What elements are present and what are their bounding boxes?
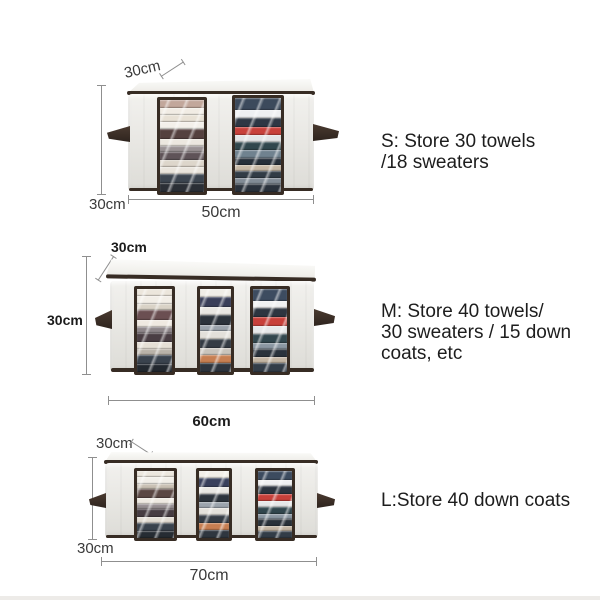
folded-clothes-stripe xyxy=(137,364,172,373)
folded-clothes-stripe xyxy=(258,471,292,480)
folded-clothes-stripe xyxy=(235,150,281,157)
folded-clothes-stripe xyxy=(160,122,204,129)
description-l-line1: L:Store 40 down coats xyxy=(381,490,570,511)
clothes-window-m-1 xyxy=(134,286,175,375)
width-label-l: 70cm xyxy=(101,567,317,585)
folded-clothes-stripe xyxy=(235,171,281,178)
folded-clothes-stripe xyxy=(235,158,281,165)
folded-clothes-stripe xyxy=(137,523,174,530)
folded-clothes-stripe xyxy=(258,507,292,514)
folded-clothes-stripe xyxy=(160,152,204,160)
bag-handle-left-s xyxy=(107,126,130,142)
folded-clothes-stripe xyxy=(200,289,231,297)
folded-clothes-stripe xyxy=(160,160,204,167)
depth-label-m: 30cm xyxy=(111,239,147,255)
width-label-m: 60cm xyxy=(108,413,315,430)
folded-clothes-stripe xyxy=(200,325,231,332)
folded-clothes-stripe xyxy=(253,363,287,372)
description-s: S: Store 30 towels /18 sweaters xyxy=(381,131,535,173)
folded-clothes-stripe xyxy=(200,297,231,308)
folded-clothes-stripe xyxy=(235,184,281,192)
clothes-window-m-3 xyxy=(250,286,290,375)
bag-handle-right-s xyxy=(313,124,339,141)
folded-clothes-stripe xyxy=(137,531,174,538)
storage-bag-s xyxy=(128,94,314,191)
folded-clothes-stripe xyxy=(200,348,231,355)
folded-clothes-stripe xyxy=(137,509,174,516)
folded-clothes-stripe xyxy=(137,342,172,349)
folded-clothes-stripe xyxy=(235,98,281,110)
folded-clothes-stripe xyxy=(200,307,231,315)
width-label-s: 50cm xyxy=(128,204,314,222)
folded-clothes-stripe xyxy=(137,320,172,327)
folded-clothes-stripe xyxy=(160,100,204,108)
folded-clothes-stripe xyxy=(253,349,287,357)
folded-clothes-stripe xyxy=(160,115,204,122)
folded-clothes-stripe xyxy=(258,486,292,493)
folded-clothes-stripe xyxy=(199,523,229,530)
folded-clothes-stripe xyxy=(137,310,172,320)
clothes-window-s-2 xyxy=(232,95,284,195)
clothes-window-s-1 xyxy=(157,97,207,195)
clothes-window-l-3 xyxy=(255,468,295,541)
folded-clothes-stripe xyxy=(253,301,287,309)
description-l: L:Store 40 down coats xyxy=(381,490,570,511)
folded-clothes-stripe xyxy=(200,355,231,363)
description-m-line2: 30 sweaters / 15 down xyxy=(381,322,571,343)
folded-clothes-stripe xyxy=(200,331,231,339)
folded-clothes-stripe xyxy=(253,334,287,343)
folded-clothes-stripe xyxy=(258,531,292,538)
folded-clothes-stripe xyxy=(253,289,287,301)
description-m-line3: coats, etc xyxy=(381,343,571,364)
folded-clothes-stripe xyxy=(235,127,281,135)
height-dim-line-s xyxy=(101,85,102,195)
folded-clothes-stripe xyxy=(258,494,292,501)
clothes-window-m-2 xyxy=(197,286,234,375)
folded-clothes-stripe xyxy=(199,471,229,478)
folded-clothes-stripe xyxy=(199,478,229,487)
bottom-edge-band xyxy=(0,596,600,600)
folded-clothes-stripe xyxy=(160,129,204,139)
folded-clothes-stripe xyxy=(199,487,229,494)
folded-clothes-stripe xyxy=(160,183,204,192)
folded-clothes-stripe xyxy=(137,333,172,342)
depth-label-l: 30cm xyxy=(96,435,133,452)
depth-dim-line-s xyxy=(161,61,184,77)
folded-clothes-stripe xyxy=(160,108,204,115)
description-s-line2: /18 sweaters xyxy=(381,152,535,173)
width-dim-line-l xyxy=(101,561,317,562)
width-dim-line-s xyxy=(128,199,314,200)
folded-clothes-stripe xyxy=(235,110,281,118)
bag-handle-right-m xyxy=(314,309,335,326)
folded-clothes-stripe xyxy=(200,339,231,348)
depth-label-s: 30cm xyxy=(123,57,163,82)
height-label-s: 30cm xyxy=(89,196,126,213)
height-label-l: 30cm xyxy=(77,540,114,557)
folded-clothes-stripe xyxy=(199,508,229,515)
clothes-window-l-2 xyxy=(196,468,232,541)
folded-clothes-stripe xyxy=(137,489,174,498)
product-infographic: 30cm 30cm 50cm S: Store 30 towels /18 sw… xyxy=(0,0,600,600)
description-s-line1: S: Store 30 towels xyxy=(381,131,535,152)
width-dim-line-m xyxy=(108,400,315,401)
bag-handle-left-m xyxy=(95,310,112,329)
folded-clothes-stripe xyxy=(199,494,229,502)
folded-clothes-stripe xyxy=(253,326,287,334)
height-label-m: 30cm xyxy=(47,312,83,328)
description-m-line1: M: Store 40 towels/ xyxy=(381,301,571,322)
folded-clothes-stripe xyxy=(235,142,281,150)
clothes-window-l-1 xyxy=(134,468,177,541)
folded-clothes-stripe xyxy=(160,167,204,174)
height-dim-line-m xyxy=(86,256,87,375)
folded-clothes-stripe xyxy=(137,355,172,364)
folded-clothes-stripe xyxy=(160,139,204,146)
folded-clothes-stripe xyxy=(200,315,231,324)
folded-clothes-stripe xyxy=(160,174,204,183)
folded-clothes-stripe xyxy=(137,296,172,303)
description-m: M: Store 40 towels/ 30 sweaters / 15 dow… xyxy=(381,301,571,364)
folded-clothes-stripe xyxy=(199,530,229,538)
bag-handle-right-l xyxy=(317,493,335,508)
folded-clothes-stripe xyxy=(200,363,231,372)
folded-clothes-stripe xyxy=(235,135,281,142)
folded-clothes-stripe xyxy=(137,289,172,296)
folded-clothes-stripe xyxy=(235,118,281,126)
folded-clothes-stripe xyxy=(253,317,287,326)
folded-clothes-stripe xyxy=(253,308,287,317)
folded-clothes-stripe xyxy=(199,515,229,523)
